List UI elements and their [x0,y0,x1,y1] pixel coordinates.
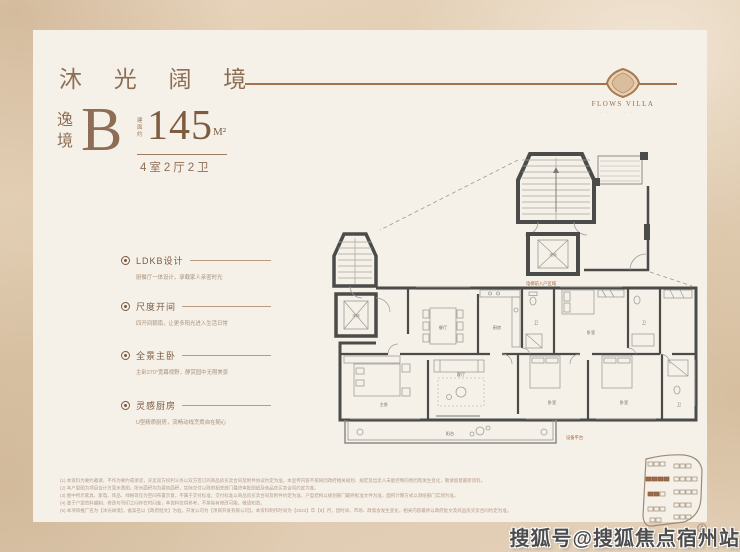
unit-area-group: 建面约 145 M² [137,104,226,148]
room-label-bedroom4: 卧室 [620,399,628,406]
room-label-bath1: 卫 [534,320,538,325]
feature-title: 尺度开间 [136,300,176,313]
poster-card: 沐 光 阔 境 FLOWS VILLA ∙ ∙ ∙ ∙ ∙ ∙ ∙ ∙ 逸境 B… [33,30,707,522]
feature-item-ldkb: LDKB设计 厨餐厅一体设计，承载家人亲密时光 [121,254,271,286]
unit-room-count: 4室2厅2卫 [140,159,212,175]
right-stair-core: 电梯 电梯前入户区域 [518,152,650,287]
elevator-label: 电梯 [549,252,557,257]
feature-desc: U型精质厨房，流畅动线烹煮自在随心 [136,418,217,426]
feature-rule-line [182,405,271,406]
page-title: 沐 光 阔 境 [59,60,259,94]
disclaimer-line: (5) 本项目推广名为【沐光阔境】，备案名以【政府批文】为准，开发公司为【项目开… [60,507,680,514]
unit-area-unit: M² [213,126,226,138]
feature-item-openbays: 尺度开间 四开间朝南，让更多阳光进入生活日常 [121,300,271,332]
feature-desc: 主卧270°宽幕视野，静赏园中无限美景 [136,368,217,376]
feature-title: 全景主卧 [136,349,176,362]
disclaimer-line: (3) 图中所示家具、家电、饰品、绿植等仅为空间布置示意，不属于交付标准；交付标… [60,492,680,499]
brand-emblem-icon [603,67,643,99]
feature-title: 灵感厨房 [136,399,176,412]
bullet-dot-icon [121,302,130,311]
room-label-balcony: 阳台 [446,430,454,437]
room-label-dining: 餐厅 [439,324,447,331]
poster-background: 沐 光 阔 境 FLOWS VILLA ∙ ∙ ∙ ∙ ∙ ∙ ∙ ∙ 逸境 B… [0,0,740,552]
unit-underline [137,154,227,155]
room-label-living: 客厅 [457,371,465,378]
brand-name: FLOWS VILLA [578,100,668,108]
unit-area-prefix: 建面约 [137,118,144,139]
feature-rule-line [182,306,271,307]
unit-series-label: 逸境 [57,110,77,152]
elevator-label: 电梯 [352,313,360,318]
disclaimer-line: (1) 本资料为要约邀请，不作为要约或承诺，买卖双方权利义务以双方签订的商品房买… [60,477,680,484]
disclaimer-line: (4) 鉴于户型资料编制、修改与刊印之间存在时间差，本资料仅供参考，不排除有修改… [60,500,680,507]
feature-desc: 厨餐厅一体设计，承载家人亲密时光 [136,273,217,281]
room-label-bedroom3: 卧室 [548,399,556,406]
plan-annotation: 设备平台 [566,434,583,441]
brand-subtext: ∙ ∙ ∙ ∙ ∙ ∙ ∙ ∙ [578,110,668,115]
floor-plan: 电梯 电梯前入户区域 电梯 [330,138,712,462]
feature-desc: 四开间朝南，让更多阳光进入生活日常 [136,319,217,327]
bullet-dot-icon [121,256,130,265]
bullet-dot-icon [121,401,130,410]
feature-item-master: 全景主卧 主卧270°宽幕视野，静赏园中无限美景 [121,349,271,381]
bullet-dot-icon [121,351,130,360]
feature-rule-line [190,260,271,261]
feature-rule-line [182,355,271,356]
room-label-bath3: 卫 [677,402,681,407]
left-stair-core: 电梯 [334,234,376,336]
unit-area-value: 145 [147,104,213,148]
unit-walls [340,288,696,420]
feature-item-kitchen: 灵感厨房 U型精质厨房，流畅动线烹煮自在随心 [121,399,271,431]
feature-title: LDKB设计 [136,254,184,267]
disclaimer-block: (1) 本资料为要约邀请，不作为要约或承诺，买卖双方权利义务以双方签订的商品房买… [60,477,680,515]
room-label-bedroom2: 卧室 [587,329,595,336]
room-label-master: 主卧 [380,401,388,408]
disclaimer-line: (2) 本户型图为项目设计方案示意图，所示面积均为建筑面积，实际交付以政府相关部… [60,485,680,492]
room-label-kitchen: 厨房 [493,324,501,331]
watermark-text: 搜狐号@搜狐焦点宿州站 [509,522,740,551]
unit-type-letter: B [81,99,122,161]
room-label-bath2: 卫 [642,320,646,325]
core-annotation: 电梯前入户区域 [526,280,557,287]
